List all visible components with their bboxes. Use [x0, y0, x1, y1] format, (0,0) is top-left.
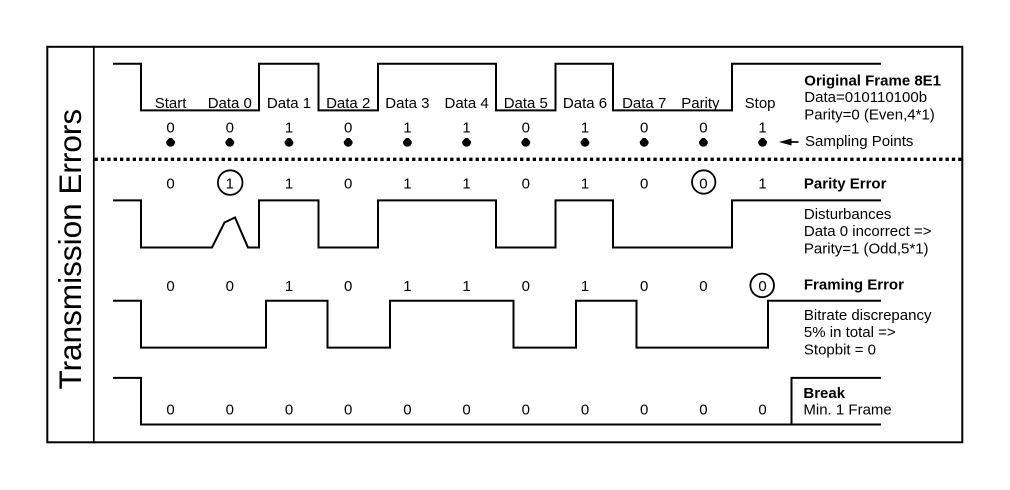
svg-text:0: 0 — [699, 120, 707, 137]
svg-text:Stop: Stop — [745, 95, 776, 112]
svg-text:1: 1 — [758, 120, 766, 137]
svg-text:Parity: Parity — [681, 95, 720, 112]
svg-text:0: 0 — [640, 176, 648, 193]
svg-text:0: 0 — [640, 402, 648, 419]
svg-text:0: 0 — [344, 402, 352, 419]
svg-text:0: 0 — [462, 402, 470, 419]
svg-text:Parity Error: Parity Error — [804, 175, 887, 192]
svg-text:1: 1 — [285, 120, 293, 137]
svg-text:0: 0 — [344, 120, 352, 137]
svg-text:Data 2: Data 2 — [326, 95, 370, 112]
svg-text:Data 7: Data 7 — [622, 95, 666, 112]
svg-text:0: 0 — [344, 176, 352, 193]
svg-text:Data 4: Data 4 — [444, 95, 488, 112]
svg-text:Parity=1 (Odd,5*1): Parity=1 (Odd,5*1) — [804, 241, 929, 258]
svg-text:1: 1 — [403, 176, 411, 193]
svg-text:Start: Start — [155, 95, 188, 112]
svg-text:Sampling Points: Sampling Points — [805, 133, 913, 150]
svg-text:1: 1 — [462, 176, 470, 193]
svg-text:0: 0 — [522, 120, 530, 137]
svg-text:0: 0 — [403, 402, 411, 419]
svg-text:Disturbances: Disturbances — [804, 206, 892, 223]
svg-text:Data 1: Data 1 — [267, 95, 311, 112]
svg-text:0: 0 — [166, 402, 174, 419]
svg-text:Stopbit = 0: Stopbit = 0 — [804, 342, 876, 359]
svg-text:0: 0 — [699, 278, 707, 295]
svg-text:0: 0 — [758, 402, 766, 419]
svg-text:0: 0 — [166, 176, 174, 193]
svg-text:Data=010110100b: Data=010110100b — [804, 89, 927, 106]
svg-text:Data 0 incorrect =>: Data 0 incorrect => — [804, 223, 932, 240]
svg-text:1: 1 — [226, 176, 234, 193]
svg-text:0: 0 — [522, 278, 530, 295]
svg-text:1: 1 — [285, 278, 293, 295]
svg-text:0: 0 — [344, 278, 352, 295]
svg-text:1: 1 — [758, 176, 766, 193]
svg-text:1: 1 — [403, 278, 411, 295]
svg-text:1: 1 — [581, 120, 589, 137]
svg-text:0: 0 — [758, 278, 766, 295]
svg-text:0: 0 — [166, 278, 174, 295]
svg-text:1: 1 — [462, 120, 470, 137]
svg-text:1: 1 — [403, 120, 411, 137]
svg-text:Parity=0 (Even,4*1): Parity=0 (Even,4*1) — [804, 106, 934, 123]
svg-text:0: 0 — [226, 402, 234, 419]
svg-text:1: 1 — [581, 176, 589, 193]
svg-text:Data 3: Data 3 — [385, 95, 429, 112]
svg-text:0: 0 — [226, 120, 234, 137]
svg-text:Break: Break — [803, 385, 845, 402]
svg-text:0: 0 — [699, 402, 707, 419]
svg-text:Transmission Errors: Transmission Errors — [52, 109, 88, 390]
svg-text:Data 0: Data 0 — [208, 95, 252, 112]
svg-text:0: 0 — [166, 120, 174, 137]
svg-text:Data 6: Data 6 — [563, 95, 607, 112]
svg-text:0: 0 — [640, 120, 648, 137]
svg-text:Data 5: Data 5 — [504, 95, 548, 112]
svg-text:Bitrate discrepancy: Bitrate discrepancy — [804, 307, 932, 324]
svg-text:0: 0 — [285, 402, 293, 419]
svg-text:1: 1 — [581, 278, 589, 295]
svg-text:1: 1 — [462, 278, 470, 295]
svg-text:0: 0 — [226, 278, 234, 295]
svg-text:0: 0 — [522, 402, 530, 419]
svg-text:0: 0 — [640, 278, 648, 295]
svg-text:Original Frame 8E1: Original Frame 8E1 — [804, 72, 941, 89]
svg-text:0: 0 — [581, 402, 589, 419]
svg-text:0: 0 — [699, 176, 707, 193]
svg-text:0: 0 — [522, 176, 530, 193]
svg-text:Min. 1 Frame: Min. 1 Frame — [803, 402, 891, 419]
svg-text:Framing Error: Framing Error — [804, 276, 904, 293]
svg-text:1: 1 — [285, 176, 293, 193]
svg-text:5% in total =>: 5% in total => — [804, 324, 896, 341]
